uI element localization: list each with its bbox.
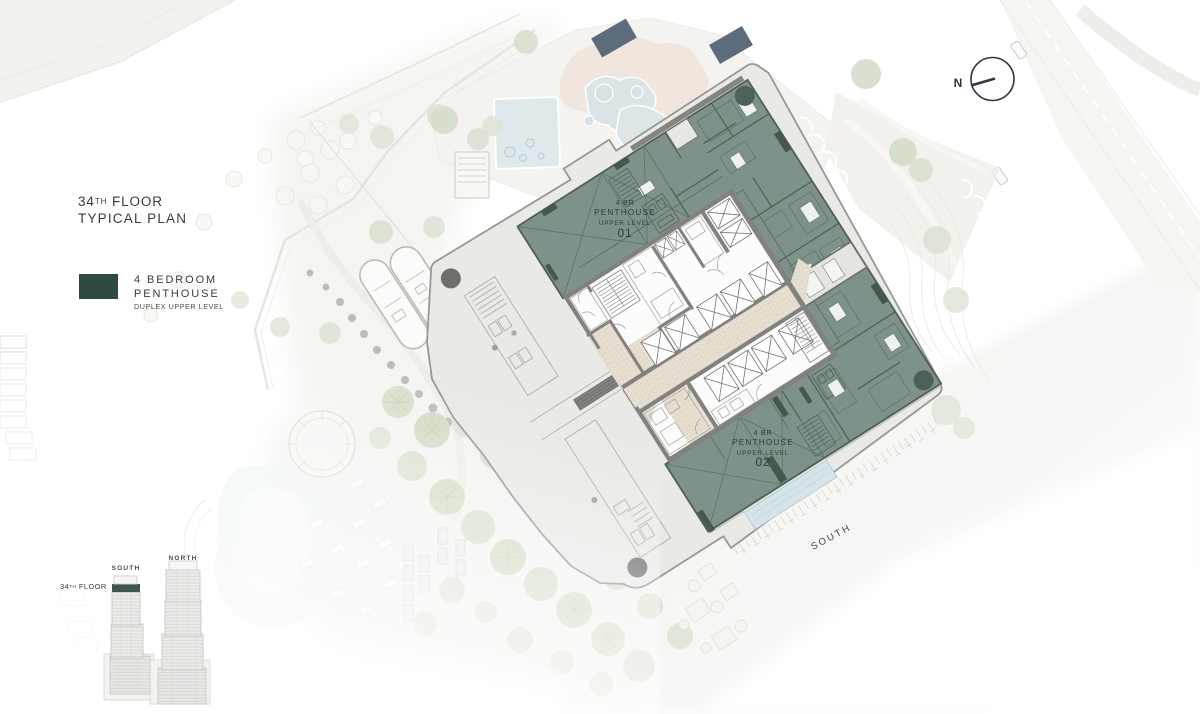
svg-text:N: N [954, 76, 963, 90]
svg-text:34TH FLOOR: 34TH FLOOR [78, 194, 163, 209]
svg-text:PENTHOUSE: PENTHOUSE [594, 208, 656, 217]
svg-text:PENTHOUSE: PENTHOUSE [732, 438, 794, 447]
svg-text:01: 01 [618, 226, 633, 240]
svg-text:02: 02 [756, 455, 771, 469]
svg-text:34TH FLOOR: 34TH FLOOR [60, 582, 107, 591]
svg-text:TYPICAL PLAN: TYPICAL PLAN [78, 211, 187, 226]
svg-text:DUPLEX UPPER LEVEL: DUPLEX UPPER LEVEL [134, 302, 224, 311]
svg-text:4 BR: 4 BR [754, 430, 773, 437]
svg-text:SOUTH: SOUTH [112, 565, 141, 572]
svg-text:PENTHOUSE: PENTHOUSE [134, 288, 220, 300]
svg-text:4 BEDROOM: 4 BEDROOM [134, 274, 217, 286]
svg-text:NORTH: NORTH [168, 555, 197, 562]
svg-text:4 BR: 4 BR [616, 200, 635, 207]
